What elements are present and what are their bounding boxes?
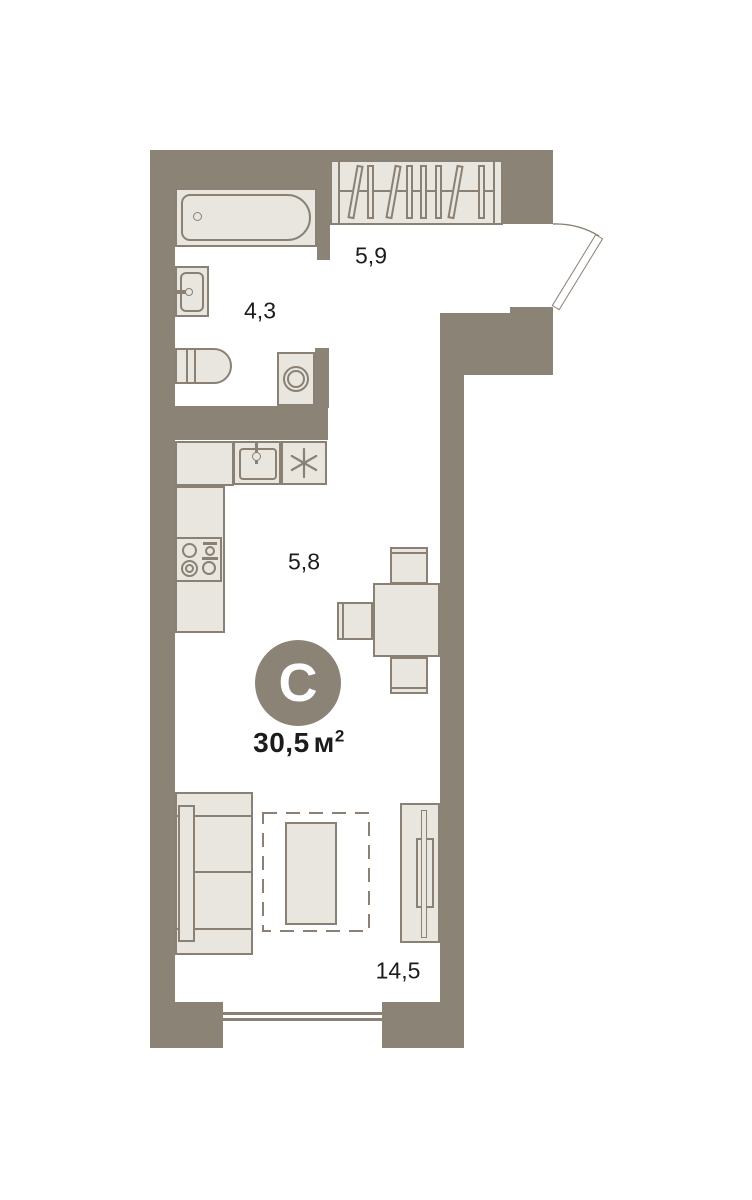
wall-left	[150, 186, 175, 1002]
washbasin-faucet-knob	[185, 288, 193, 296]
toilet-tank-line-2	[194, 350, 196, 382]
room-label-bathroom: 4,3	[244, 298, 276, 325]
wardrobe-panel-left	[338, 162, 340, 223]
wall-entry-chunk	[440, 313, 553, 375]
tv-screen	[421, 810, 427, 938]
wall-entry-column	[503, 158, 553, 224]
washing-machine-drum-inner	[287, 370, 305, 388]
total-area-label: 30,5м2	[253, 727, 345, 759]
chair-left-back	[342, 604, 344, 638]
kitchen-faucet-knob	[252, 452, 261, 461]
wall-top-bathroom	[150, 150, 330, 188]
wall-bathroom-partition-upper	[317, 186, 330, 260]
hanger-icon	[367, 165, 374, 219]
room-label-living: 14,5	[376, 958, 421, 985]
total-area-superscript: 2	[335, 727, 345, 746]
wall-bathroom-partition-lower	[315, 348, 329, 408]
dining-table	[373, 583, 440, 657]
wardrobe-panel-right	[493, 162, 495, 223]
studio-badge: С	[255, 640, 341, 726]
stove-burner-br	[202, 561, 216, 575]
total-area-unit: м	[314, 727, 335, 758]
kitchen-counter-corner	[175, 441, 234, 486]
window-outer-line	[223, 1012, 383, 1015]
stove-burner-bl-inner	[185, 564, 194, 573]
stove-burner-tl	[182, 543, 197, 558]
studio-badge-letter: С	[279, 656, 318, 710]
hanger-icon	[406, 165, 413, 219]
room-label-kitchen: 5,8	[288, 549, 320, 576]
floor-plan: 5,9 4,3 5,8 14,5 С 30,5м2	[0, 0, 752, 1200]
room-label-hallway: 5,9	[355, 243, 387, 270]
total-area-value: 30,5	[253, 727, 310, 758]
door-swing-arc	[553, 224, 599, 236]
entry-door-leaf	[552, 234, 604, 310]
stove-control-bar-bottom	[202, 557, 218, 560]
wall-bathroom-south	[175, 406, 328, 440]
hanger-icon	[420, 165, 427, 219]
stove-control-bar-top	[203, 542, 217, 545]
stove-burner-tr	[205, 546, 215, 556]
wardrobe-rail	[340, 190, 493, 192]
wall-right	[440, 375, 464, 1002]
hob-unit	[281, 441, 327, 485]
coffee-table	[285, 822, 337, 925]
chair-bottom-back	[392, 687, 426, 689]
wall-pier-bottom-left	[150, 1002, 223, 1048]
toilet-tank-line-1	[186, 350, 188, 382]
sofa-seat-divider	[195, 871, 251, 873]
toilet	[175, 348, 232, 384]
wall-pier-bottom-right	[382, 1002, 464, 1048]
bathtub-drain-icon	[193, 212, 202, 221]
hanger-icon	[435, 165, 442, 219]
chair-top-back	[392, 552, 426, 554]
sofa-backrest	[178, 805, 195, 942]
hanger-icon	[478, 165, 485, 219]
window-inner-line	[223, 1018, 383, 1021]
